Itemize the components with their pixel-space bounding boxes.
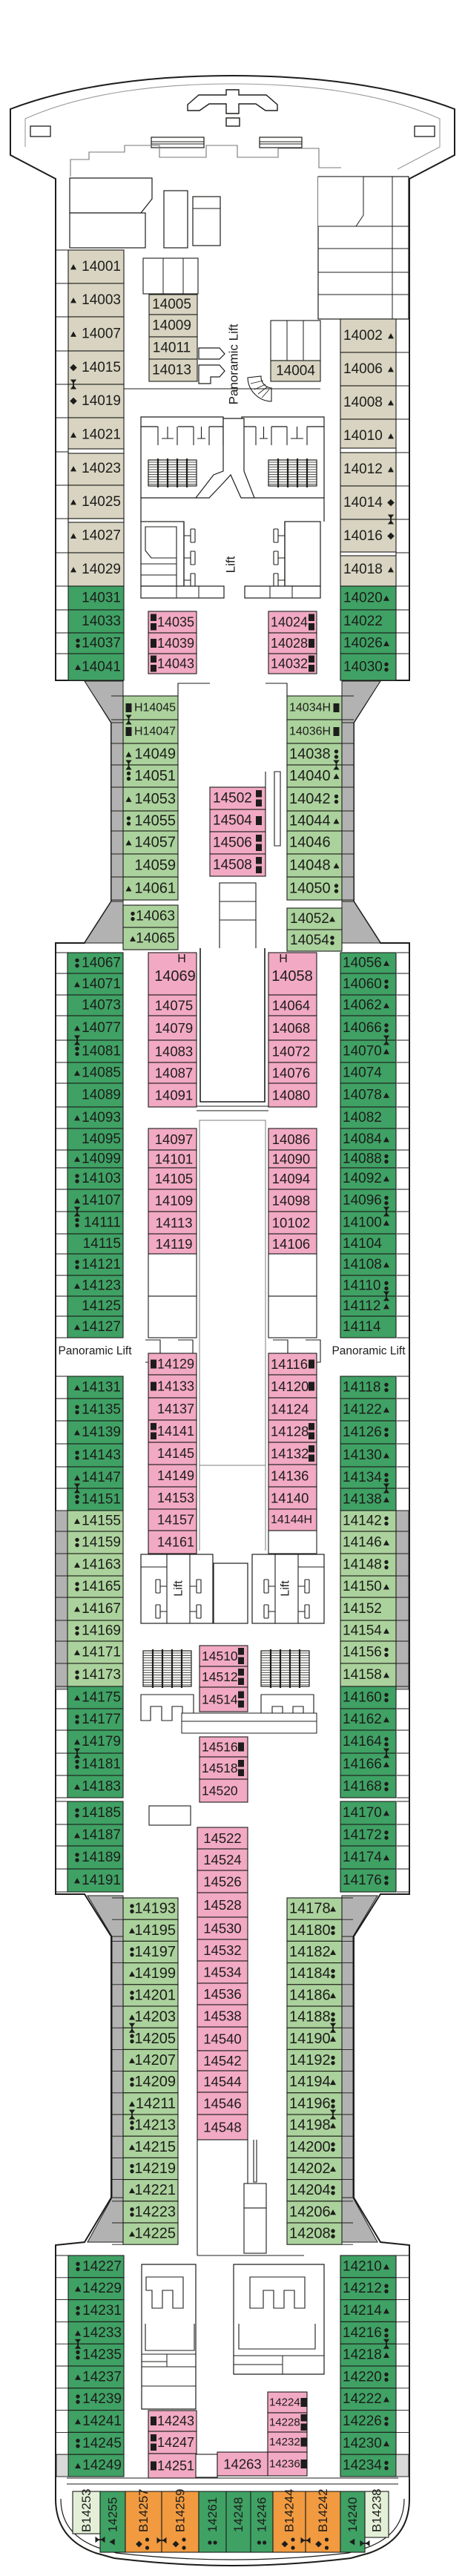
svg-text:14058: 14058: [271, 968, 313, 985]
svg-text:14029: 14029: [82, 562, 121, 577]
svg-text:14220: 14220: [343, 2369, 382, 2385]
svg-text:14221: 14221: [134, 2182, 176, 2198]
svg-text:14223: 14223: [134, 2204, 176, 2220]
svg-text:14079: 14079: [155, 1020, 193, 1036]
svg-text:14041: 14041: [82, 660, 121, 675]
svg-text:14204: 14204: [289, 2182, 331, 2198]
svg-text:14249: 14249: [82, 2458, 122, 2474]
svg-text:14168: 14168: [343, 1779, 382, 1795]
svg-text:14114: 14114: [343, 1319, 381, 1335]
svg-text:14126: 14126: [343, 1425, 382, 1440]
svg-text:14050: 14050: [289, 881, 331, 897]
svg-text:H14045: H14045: [134, 702, 176, 714]
svg-text:14144H: 14144H: [271, 1514, 312, 1526]
svg-text:14544: 14544: [203, 2074, 241, 2089]
svg-text:14024: 14024: [271, 615, 308, 630]
svg-text:14261: 14261: [205, 2497, 220, 2532]
svg-text:14013: 14013: [152, 363, 191, 378]
svg-text:14239: 14239: [82, 2391, 122, 2407]
svg-text:14506: 14506: [213, 835, 252, 851]
svg-text:14023: 14023: [82, 461, 121, 476]
svg-text:14035: 14035: [157, 615, 194, 630]
svg-text:14177: 14177: [82, 1712, 121, 1727]
svg-text:14064: 14064: [272, 998, 310, 1013]
svg-text:14051: 14051: [134, 768, 176, 784]
svg-text:B14257: B14257: [136, 2488, 151, 2532]
svg-text:14189: 14189: [82, 1850, 121, 1865]
svg-text:14146: 14146: [343, 1535, 382, 1551]
svg-text:14109: 14109: [155, 1193, 193, 1209]
svg-text:14008: 14008: [343, 395, 383, 410]
svg-text:14032: 14032: [271, 657, 308, 671]
svg-text:14546: 14546: [203, 2096, 241, 2112]
svg-text:14009: 14009: [152, 318, 191, 334]
svg-text:14532: 14532: [203, 1942, 241, 1958]
svg-text:14123: 14123: [82, 1278, 121, 1294]
svg-text:14010: 14010: [343, 428, 383, 444]
svg-text:14067: 14067: [82, 956, 121, 971]
svg-text:Lift: Lift: [280, 1580, 292, 1597]
svg-text:14213: 14213: [134, 2117, 176, 2134]
svg-text:14002: 14002: [343, 328, 383, 344]
svg-text:14248: 14248: [231, 2497, 245, 2532]
svg-text:14097: 14097: [155, 1131, 193, 1147]
svg-text:14202: 14202: [289, 2161, 331, 2177]
svg-text:14093: 14093: [82, 1110, 121, 1126]
svg-text:14169: 14169: [82, 1623, 121, 1639]
svg-text:14148: 14148: [343, 1557, 382, 1573]
svg-text:14173: 14173: [82, 1667, 121, 1683]
svg-text:14181: 14181: [82, 1757, 121, 1772]
svg-text:14075: 14075: [155, 998, 193, 1013]
svg-text:14099: 14099: [82, 1151, 121, 1167]
svg-text:14211: 14211: [136, 2095, 176, 2112]
svg-text:14530: 14530: [203, 1921, 241, 1936]
svg-text:H14047: H14047: [134, 726, 176, 738]
svg-text:14235: 14235: [82, 2347, 122, 2363]
svg-text:14042: 14042: [289, 791, 331, 807]
svg-text:14095: 14095: [82, 1131, 121, 1147]
svg-text:14512: 14512: [202, 1669, 238, 1684]
svg-text:14100: 14100: [343, 1215, 382, 1231]
svg-text:14183: 14183: [82, 1779, 121, 1795]
svg-text:14107: 14107: [82, 1193, 121, 1209]
svg-text:14142: 14142: [343, 1514, 382, 1529]
svg-text:14130: 14130: [343, 1448, 382, 1463]
svg-text:14127: 14127: [82, 1319, 121, 1335]
svg-text:14030: 14030: [343, 660, 383, 675]
svg-text:14210: 14210: [343, 2258, 382, 2274]
svg-text:14038: 14038: [289, 746, 331, 763]
svg-text:14243: 14243: [157, 2414, 194, 2428]
svg-text:14212: 14212: [343, 2281, 382, 2296]
svg-text:14062: 14062: [343, 998, 382, 1013]
svg-text:14215: 14215: [134, 2139, 176, 2155]
svg-text:B14242: B14242: [316, 2488, 330, 2532]
svg-text:14049: 14049: [134, 746, 176, 763]
svg-text:14199: 14199: [134, 1965, 176, 1982]
svg-text:14216: 14216: [343, 2325, 382, 2341]
svg-text:14054: 14054: [290, 933, 329, 948]
svg-text:14255: 14255: [106, 2497, 120, 2532]
svg-text:14524: 14524: [203, 1852, 241, 1867]
svg-text:14080: 14080: [272, 1088, 310, 1103]
svg-text:14001: 14001: [82, 259, 121, 275]
svg-text:14158: 14158: [343, 1667, 382, 1683]
svg-text:14110: 14110: [343, 1278, 380, 1294]
svg-text:14178: 14178: [289, 1901, 331, 1917]
svg-text:14172: 14172: [343, 1827, 382, 1843]
svg-text:14059: 14059: [134, 858, 176, 874]
svg-text:14203: 14203: [134, 2009, 176, 2025]
svg-text:14154: 14154: [343, 1623, 382, 1639]
svg-text:14015: 14015: [82, 360, 121, 375]
svg-text:14166: 14166: [343, 1757, 382, 1772]
svg-text:14135: 14135: [82, 1402, 121, 1418]
svg-text:14020: 14020: [343, 591, 383, 606]
svg-text:14124: 14124: [271, 1402, 309, 1417]
svg-text:14133: 14133: [157, 1379, 194, 1394]
svg-text:14227: 14227: [82, 2258, 122, 2274]
svg-text:14081: 14081: [82, 1044, 121, 1059]
svg-text:14196: 14196: [289, 2095, 331, 2112]
svg-text:14246: 14246: [255, 2497, 269, 2532]
svg-text:14179: 14179: [82, 1734, 121, 1749]
svg-text:14209: 14209: [134, 2074, 176, 2090]
svg-text:14175: 14175: [82, 1690, 121, 1706]
svg-text:14141: 14141: [157, 1424, 194, 1439]
svg-text:14012: 14012: [343, 461, 383, 477]
svg-text:14040: 14040: [289, 768, 331, 784]
svg-text:14514: 14514: [202, 1692, 238, 1707]
svg-text:14237: 14237: [82, 2369, 122, 2385]
svg-text:14134: 14134: [343, 1470, 382, 1485]
svg-text:14161: 14161: [157, 1535, 194, 1550]
svg-text:14143: 14143: [82, 1448, 121, 1463]
svg-text:14072: 14072: [272, 1044, 310, 1059]
svg-text:14231: 14231: [82, 2303, 122, 2319]
svg-text:14152: 14152: [343, 1601, 382, 1617]
svg-text:14137: 14137: [157, 1402, 194, 1416]
svg-text:14201: 14201: [134, 1987, 176, 2003]
svg-text:14074: 14074: [343, 1065, 382, 1081]
svg-text:14121: 14121: [82, 1257, 121, 1272]
svg-text:14241: 14241: [82, 2414, 122, 2429]
svg-text:14006: 14006: [343, 361, 383, 377]
svg-text:14150: 14150: [343, 1579, 382, 1594]
svg-text:14165: 14165: [82, 1579, 121, 1594]
svg-text:14233: 14233: [82, 2325, 122, 2341]
svg-text:14170: 14170: [343, 1805, 382, 1821]
svg-text:14520: 14520: [202, 1784, 238, 1798]
svg-text:14153: 14153: [157, 1491, 194, 1505]
svg-text:14089: 14089: [82, 1088, 121, 1103]
svg-text:14160: 14160: [343, 1690, 382, 1706]
svg-text:14197: 14197: [134, 1944, 176, 1960]
svg-text:14176: 14176: [343, 1873, 382, 1888]
svg-text:14156: 14156: [343, 1645, 382, 1660]
svg-text:14192: 14192: [289, 2052, 331, 2069]
svg-text:B14259: B14259: [174, 2488, 188, 2532]
svg-text:14263: 14263: [223, 2457, 261, 2472]
svg-text:14232: 14232: [269, 2436, 300, 2448]
svg-text:14548: 14548: [203, 2120, 241, 2135]
svg-text:14140: 14140: [271, 1491, 309, 1506]
svg-text:14101: 14101: [155, 1151, 193, 1167]
svg-text:14155: 14155: [82, 1514, 121, 1529]
svg-text:14033: 14033: [82, 614, 121, 629]
svg-text:14108: 14108: [343, 1257, 382, 1272]
svg-text:14138: 14138: [343, 1492, 382, 1508]
svg-text:14159: 14159: [82, 1535, 121, 1551]
svg-text:14004: 14004: [276, 364, 315, 379]
svg-text:Lift: Lift: [224, 556, 238, 573]
svg-text:14508: 14508: [213, 858, 252, 873]
svg-text:14025: 14025: [82, 494, 121, 510]
svg-text:14234: 14234: [343, 2458, 382, 2474]
svg-text:14120: 14120: [271, 1379, 309, 1394]
svg-text:14171: 14171: [82, 1645, 121, 1660]
svg-text:14011: 14011: [153, 341, 191, 356]
svg-text:14236: 14236: [269, 2458, 300, 2471]
svg-text:14076: 14076: [272, 1065, 310, 1081]
svg-text:14518: 14518: [202, 1761, 238, 1775]
svg-text:B14244: B14244: [283, 2488, 297, 2532]
svg-text:H: H: [177, 953, 186, 965]
svg-text:14157: 14157: [157, 1513, 194, 1528]
svg-text:14027: 14027: [82, 528, 121, 544]
svg-text:14228: 14228: [269, 2416, 300, 2429]
svg-text:14251: 14251: [157, 2459, 194, 2474]
svg-text:14180: 14180: [289, 1922, 331, 1939]
svg-text:14037: 14037: [82, 636, 121, 651]
svg-text:14182: 14182: [289, 1944, 331, 1960]
svg-text:14167: 14167: [82, 1601, 121, 1617]
svg-text:14003: 14003: [82, 292, 121, 308]
svg-text:14540: 14540: [203, 2031, 241, 2047]
svg-text:14230: 14230: [343, 2436, 382, 2451]
svg-text:14106: 14106: [272, 1236, 310, 1252]
svg-text:14052: 14052: [290, 911, 329, 927]
svg-text:14039: 14039: [157, 636, 194, 651]
svg-text:14222: 14222: [343, 2391, 382, 2407]
svg-text:14053: 14053: [134, 791, 176, 807]
svg-text:14113: 14113: [155, 1215, 192, 1231]
svg-text:14098: 14098: [272, 1193, 310, 1209]
svg-text:14132: 14132: [271, 1446, 309, 1462]
svg-text:14151: 14151: [82, 1492, 121, 1508]
svg-text:14048: 14048: [289, 858, 331, 874]
svg-text:14119: 14119: [155, 1236, 192, 1252]
svg-text:14022: 14022: [343, 614, 383, 629]
svg-text:14036H: 14036H: [289, 726, 331, 738]
svg-text:14055: 14055: [134, 813, 176, 829]
svg-text:14226: 14226: [343, 2414, 382, 2429]
svg-text:14044: 14044: [289, 813, 331, 829]
svg-text:14206: 14206: [289, 2204, 331, 2220]
svg-text:14043: 14043: [157, 657, 194, 671]
svg-text:14534: 14534: [203, 1965, 241, 1980]
svg-text:14083: 14083: [155, 1044, 193, 1059]
svg-text:14021: 14021: [82, 427, 121, 443]
svg-text:Lift: Lift: [173, 1580, 185, 1597]
svg-text:14078: 14078: [343, 1088, 382, 1103]
svg-text:14538: 14538: [203, 2008, 241, 2024]
svg-text:14193: 14193: [134, 1901, 176, 1917]
svg-text:14145: 14145: [157, 1446, 194, 1461]
svg-text:14207: 14207: [134, 2052, 176, 2069]
svg-text:10102: 10102: [272, 1215, 310, 1231]
svg-text:14028: 14028: [271, 636, 308, 651]
svg-text:H: H: [279, 953, 288, 965]
svg-text:14214: 14214: [343, 2303, 382, 2319]
svg-text:14115: 14115: [83, 1236, 121, 1252]
svg-text:14164: 14164: [343, 1734, 382, 1749]
svg-text:14502: 14502: [213, 791, 252, 806]
svg-text:14071: 14071: [82, 976, 121, 992]
svg-text:14208: 14208: [289, 2226, 331, 2242]
svg-text:14065: 14065: [136, 931, 175, 947]
svg-text:14163: 14163: [82, 1557, 121, 1573]
svg-text:Panoramic Lift: Panoramic Lift: [227, 323, 241, 404]
svg-text:14082: 14082: [343, 1110, 382, 1126]
svg-text:14056: 14056: [343, 956, 382, 971]
svg-text:14090: 14090: [272, 1151, 310, 1167]
svg-text:14542: 14542: [203, 2053, 241, 2069]
svg-text:14191: 14191: [82, 1873, 121, 1888]
svg-text:14088: 14088: [343, 1151, 382, 1167]
svg-text:14031: 14031: [82, 591, 121, 606]
svg-text:14162: 14162: [343, 1712, 382, 1727]
svg-text:14092: 14092: [343, 1171, 382, 1186]
svg-text:14536: 14536: [203, 1986, 241, 2002]
svg-text:14086: 14086: [272, 1131, 310, 1147]
svg-text:Panoramic Lift: Panoramic Lift: [58, 1345, 132, 1358]
svg-text:14063: 14063: [136, 909, 175, 924]
svg-text:14528: 14528: [203, 1897, 241, 1913]
svg-text:14005: 14005: [152, 297, 191, 312]
svg-text:14060: 14060: [343, 976, 382, 992]
svg-text:14225: 14225: [134, 2226, 176, 2242]
svg-text:14147: 14147: [82, 1470, 121, 1485]
svg-text:14174: 14174: [343, 1850, 382, 1865]
svg-text:14128: 14128: [271, 1424, 309, 1439]
svg-text:14129: 14129: [157, 1357, 194, 1372]
svg-text:14247: 14247: [157, 2435, 194, 2450]
svg-text:14190: 14190: [289, 2031, 331, 2047]
svg-text:14091: 14091: [155, 1088, 193, 1103]
svg-text:14007: 14007: [82, 326, 121, 342]
svg-text:14522: 14522: [203, 1830, 241, 1846]
svg-text:14061: 14061: [134, 881, 176, 897]
svg-text:14194: 14194: [289, 2074, 331, 2090]
svg-text:14019: 14019: [82, 393, 121, 409]
svg-text:14111: 14111: [84, 1215, 121, 1231]
svg-text:14198: 14198: [289, 2117, 331, 2134]
svg-text:14218: 14218: [343, 2347, 382, 2363]
svg-text:14057: 14057: [134, 835, 176, 851]
svg-text:14245: 14245: [82, 2436, 122, 2451]
svg-text:14066: 14066: [343, 1020, 382, 1036]
svg-text:14184: 14184: [289, 1965, 331, 1982]
svg-text:14504: 14504: [213, 813, 252, 829]
svg-text:14187: 14187: [82, 1827, 121, 1843]
svg-text:14016: 14016: [343, 528, 383, 544]
svg-text:14122: 14122: [343, 1402, 382, 1418]
svg-text:14185: 14185: [82, 1805, 121, 1821]
svg-text:14084: 14084: [343, 1131, 382, 1147]
svg-text:14125: 14125: [82, 1298, 121, 1314]
svg-text:14200: 14200: [289, 2139, 331, 2155]
svg-text:B14238: B14238: [370, 2488, 384, 2532]
svg-text:14136: 14136: [271, 1468, 309, 1484]
svg-text:14229: 14229: [82, 2281, 122, 2296]
svg-text:14131: 14131: [82, 1380, 121, 1396]
svg-text:14224: 14224: [269, 2396, 300, 2409]
svg-text:14240: 14240: [346, 2497, 360, 2532]
svg-text:Panoramic Lift: Panoramic Lift: [332, 1345, 406, 1358]
svg-text:14070: 14070: [343, 1044, 382, 1059]
svg-text:14046: 14046: [289, 835, 331, 851]
svg-text:14103: 14103: [82, 1171, 121, 1186]
svg-text:14510: 14510: [202, 1649, 238, 1663]
svg-text:14026: 14026: [343, 636, 383, 651]
svg-text:14526: 14526: [203, 1874, 241, 1890]
svg-text:14516: 14516: [202, 1740, 238, 1755]
svg-text:14205: 14205: [134, 2031, 176, 2047]
svg-text:14069: 14069: [154, 968, 196, 985]
svg-text:14094: 14094: [272, 1171, 310, 1186]
svg-text:14104: 14104: [343, 1236, 382, 1252]
svg-text:14139: 14139: [82, 1425, 121, 1440]
svg-text:14073: 14073: [82, 998, 121, 1013]
svg-text:14018: 14018: [343, 562, 383, 577]
svg-text:14186: 14186: [289, 1987, 331, 2003]
svg-text:14077: 14077: [82, 1020, 121, 1036]
svg-text:14034H: 14034H: [289, 702, 331, 714]
svg-text:14087: 14087: [155, 1065, 193, 1081]
svg-text:14219: 14219: [134, 2161, 176, 2177]
svg-text:14188: 14188: [289, 2009, 331, 2025]
svg-text:14116: 14116: [271, 1356, 308, 1372]
svg-text:14085: 14085: [82, 1065, 121, 1081]
svg-text:14118: 14118: [343, 1380, 380, 1396]
svg-text:14112: 14112: [343, 1298, 380, 1314]
svg-text:B14253: B14253: [79, 2488, 93, 2532]
svg-text:14195: 14195: [134, 1922, 176, 1939]
svg-text:14014: 14014: [343, 495, 383, 510]
svg-text:14068: 14068: [272, 1020, 310, 1036]
svg-text:14096: 14096: [343, 1193, 382, 1209]
svg-text:14105: 14105: [155, 1171, 193, 1186]
svg-text:14149: 14149: [157, 1468, 194, 1483]
